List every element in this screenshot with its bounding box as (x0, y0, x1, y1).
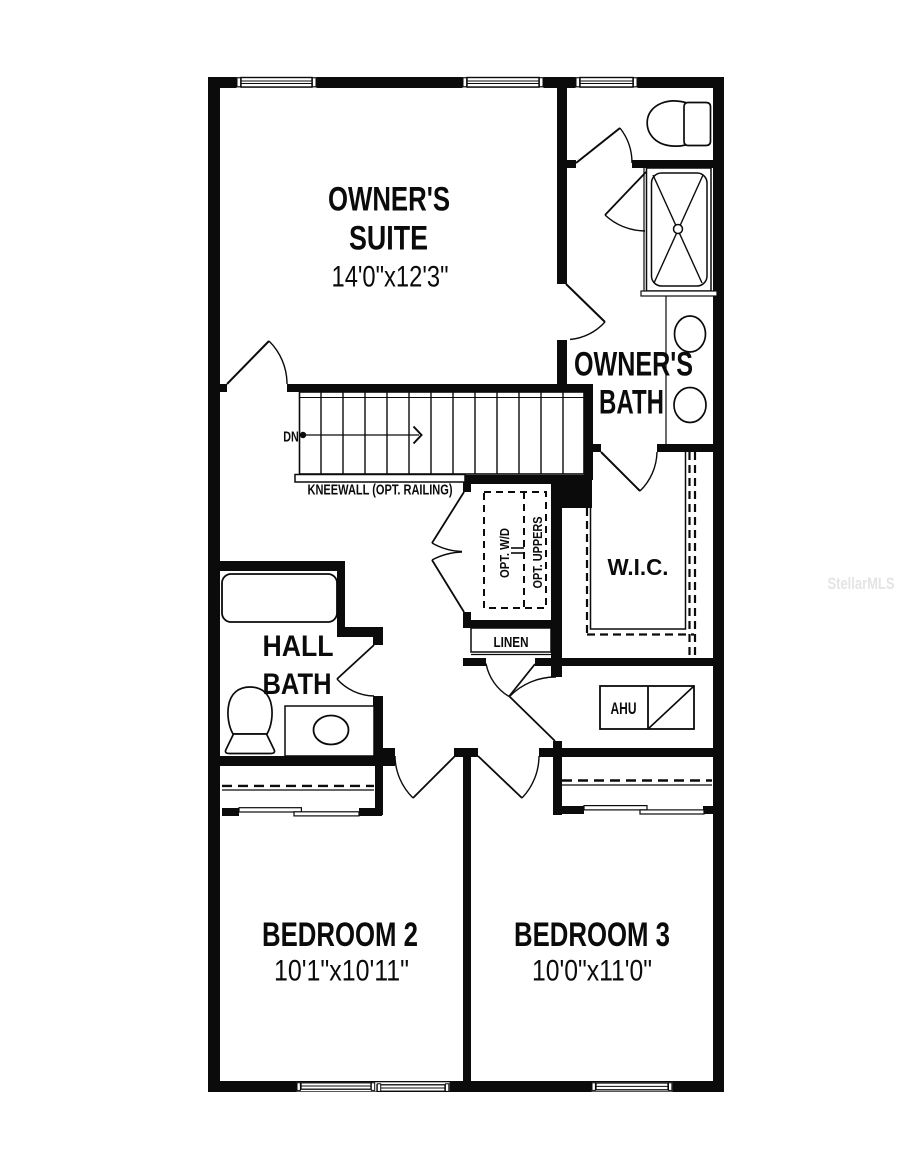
svg-text:BEDROOM 3: BEDROOM 3 (514, 916, 670, 954)
svg-text:14'0"x12'3": 14'0"x12'3" (332, 261, 449, 294)
svg-text:BATH: BATH (599, 384, 664, 422)
svg-text:DN: DN (283, 429, 299, 446)
svg-text:OWNER'S: OWNER'S (574, 346, 693, 384)
svg-text:KNEEWALL (OPT. RAILING): KNEEWALL (OPT. RAILING) (308, 483, 453, 499)
svg-text:W.I.C.: W.I.C. (608, 554, 669, 580)
svg-text:BEDROOM 2: BEDROOM 2 (262, 916, 418, 954)
svg-text:OWNER'S: OWNER'S (328, 181, 450, 219)
svg-text:AHU: AHU (611, 699, 637, 718)
svg-text:LINEN: LINEN (494, 634, 529, 651)
svg-text:BATH: BATH (263, 668, 332, 701)
svg-text:HALL: HALL (263, 630, 334, 663)
svg-text:SUITE: SUITE (349, 220, 428, 258)
svg-text:OPT. UPPERS: OPT. UPPERS (531, 517, 545, 589)
svg-text:10'0"x11'0": 10'0"x11'0" (532, 955, 652, 988)
svg-text:StellarMLS: StellarMLS (828, 574, 895, 593)
svg-text:OPT. W/D: OPT. W/D (498, 528, 512, 578)
svg-text:10'1"x10'11": 10'1"x10'11" (274, 955, 409, 988)
